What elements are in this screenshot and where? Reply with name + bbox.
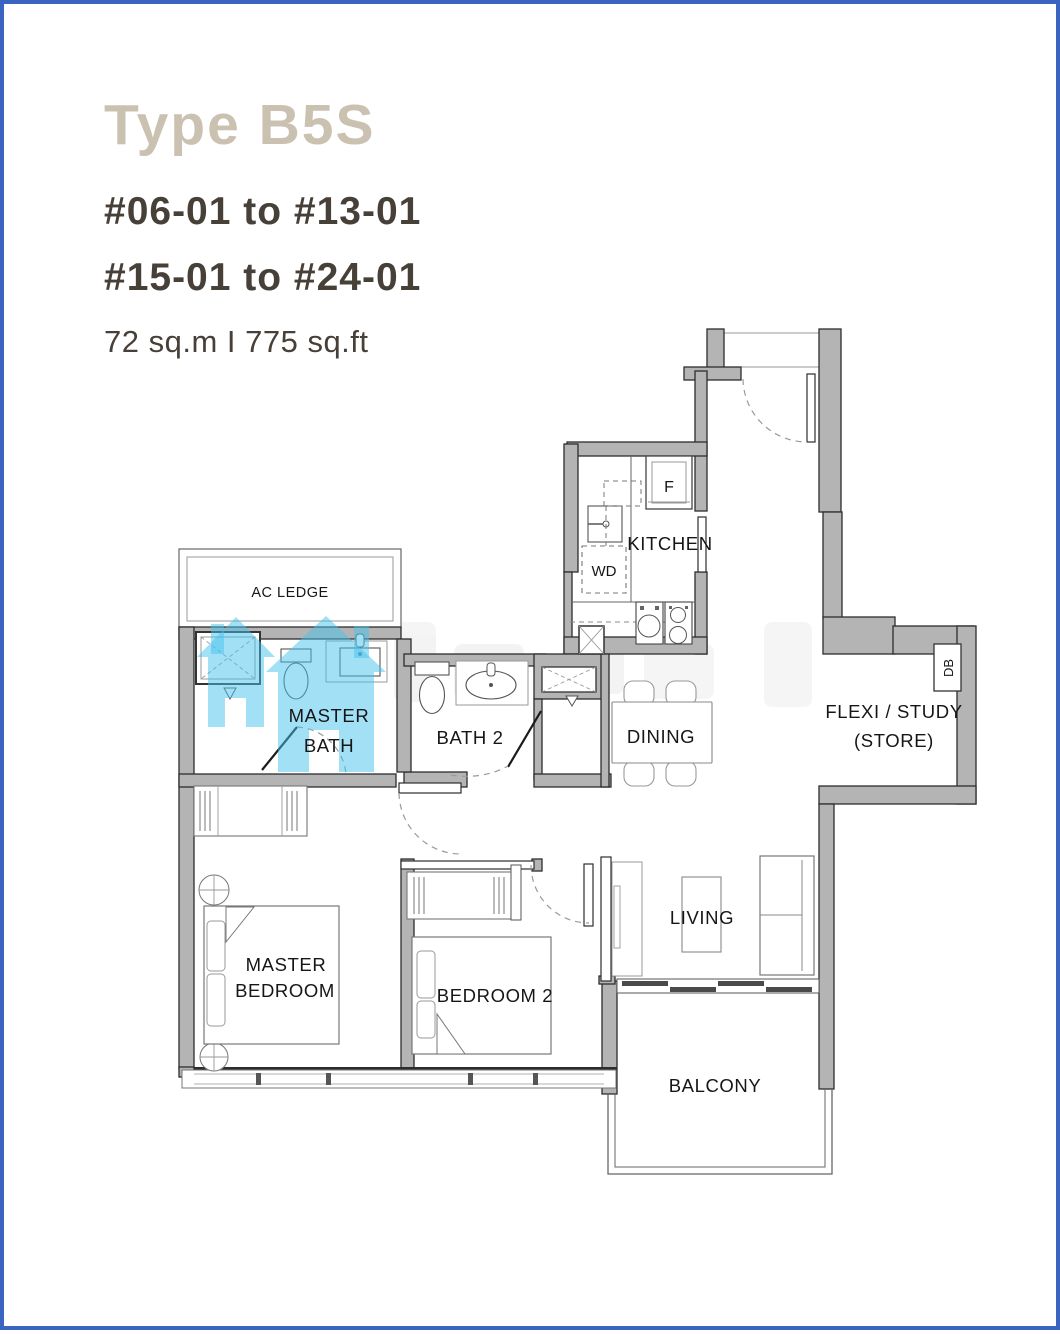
label-bath2: BATH 2 (437, 727, 504, 748)
label-master-bath-2: BATH (304, 735, 354, 756)
balcony-sliding-door (617, 979, 819, 993)
floorplan-drawing: AC LEDGE KITCHEN F WD MASTER BATH BATH 2… (4, 4, 1060, 1334)
bedroom2-furniture (407, 865, 551, 1054)
label-fridge: F (664, 479, 674, 496)
bedroom-windows (182, 1067, 617, 1088)
label-flexi-2: (STORE) (854, 730, 934, 751)
label-ac-ledge: AC LEDGE (251, 585, 328, 601)
label-master-bedroom-2: BEDROOM (235, 980, 335, 1001)
master-bedroom-furniture (194, 786, 339, 1071)
entrance-recess (724, 333, 819, 367)
label-kitchen: KITCHEN (627, 533, 712, 554)
label-db: DB (941, 659, 956, 677)
label-dining: DINING (627, 726, 695, 747)
label-washer-dryer: WD (592, 563, 617, 580)
label-master-bath-1: MASTER (289, 705, 370, 726)
balcony-railing (608, 1089, 832, 1174)
label-living: LIVING (670, 907, 734, 928)
label-bedroom2: BEDROOM 2 (437, 985, 553, 1006)
label-balcony: BALCONY (669, 1075, 762, 1096)
bath2-fixtures (415, 661, 528, 714)
label-master-bedroom-1: MASTER (246, 954, 327, 975)
floorplan-page: { "page": { "border_color": "#3a64bf" },… (0, 0, 1060, 1330)
label-flexi-1: FLEXI / STUDY (825, 701, 962, 722)
